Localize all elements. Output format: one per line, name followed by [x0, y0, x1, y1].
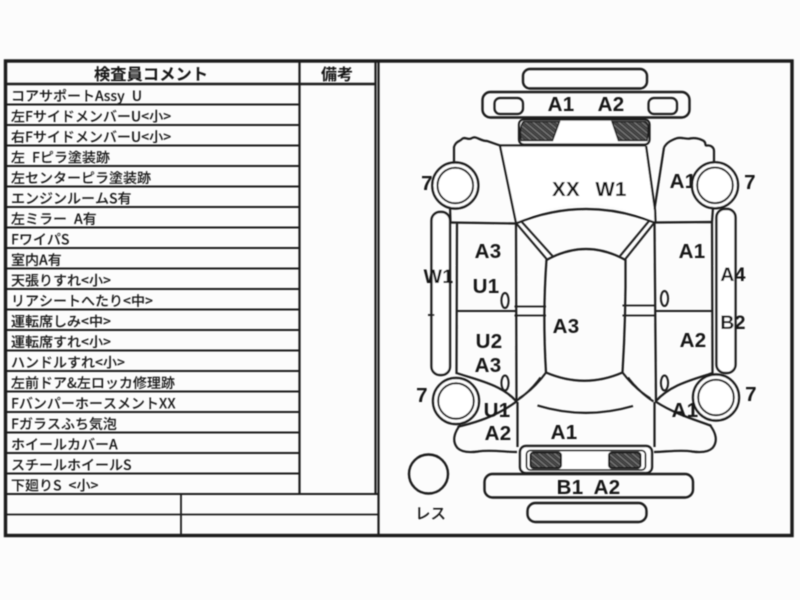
svg-text:W1: W1	[595, 178, 626, 201]
svg-text:A2: A2	[594, 476, 621, 499]
svg-text:U2: U2	[476, 330, 503, 353]
svg-text:A2: A2	[598, 93, 625, 116]
svg-text:A1: A1	[679, 240, 706, 263]
svg-text:A2: A2	[485, 422, 512, 445]
svg-text:A1: A1	[548, 93, 575, 116]
svg-text:7: 7	[744, 171, 756, 194]
svg-text:U1: U1	[473, 275, 500, 298]
svg-text:A2: A2	[680, 329, 707, 352]
svg-text:B2: B2	[720, 312, 746, 334]
svg-text:7: 7	[421, 172, 433, 195]
svg-text:A3: A3	[553, 315, 580, 338]
svg-text:W1: W1	[424, 266, 454, 288]
svg-text:U1: U1	[484, 399, 511, 422]
svg-text:7: 7	[745, 383, 757, 406]
svg-text:A4: A4	[720, 264, 746, 286]
svg-text:XX: XX	[552, 178, 580, 201]
svg-text:A3: A3	[475, 240, 502, 263]
svg-text:A1: A1	[672, 399, 699, 422]
svg-text:A1: A1	[551, 421, 578, 444]
svg-text:7: 7	[416, 384, 428, 407]
svg-text:A3: A3	[475, 354, 502, 377]
svg-text:B1: B1	[557, 476, 584, 499]
